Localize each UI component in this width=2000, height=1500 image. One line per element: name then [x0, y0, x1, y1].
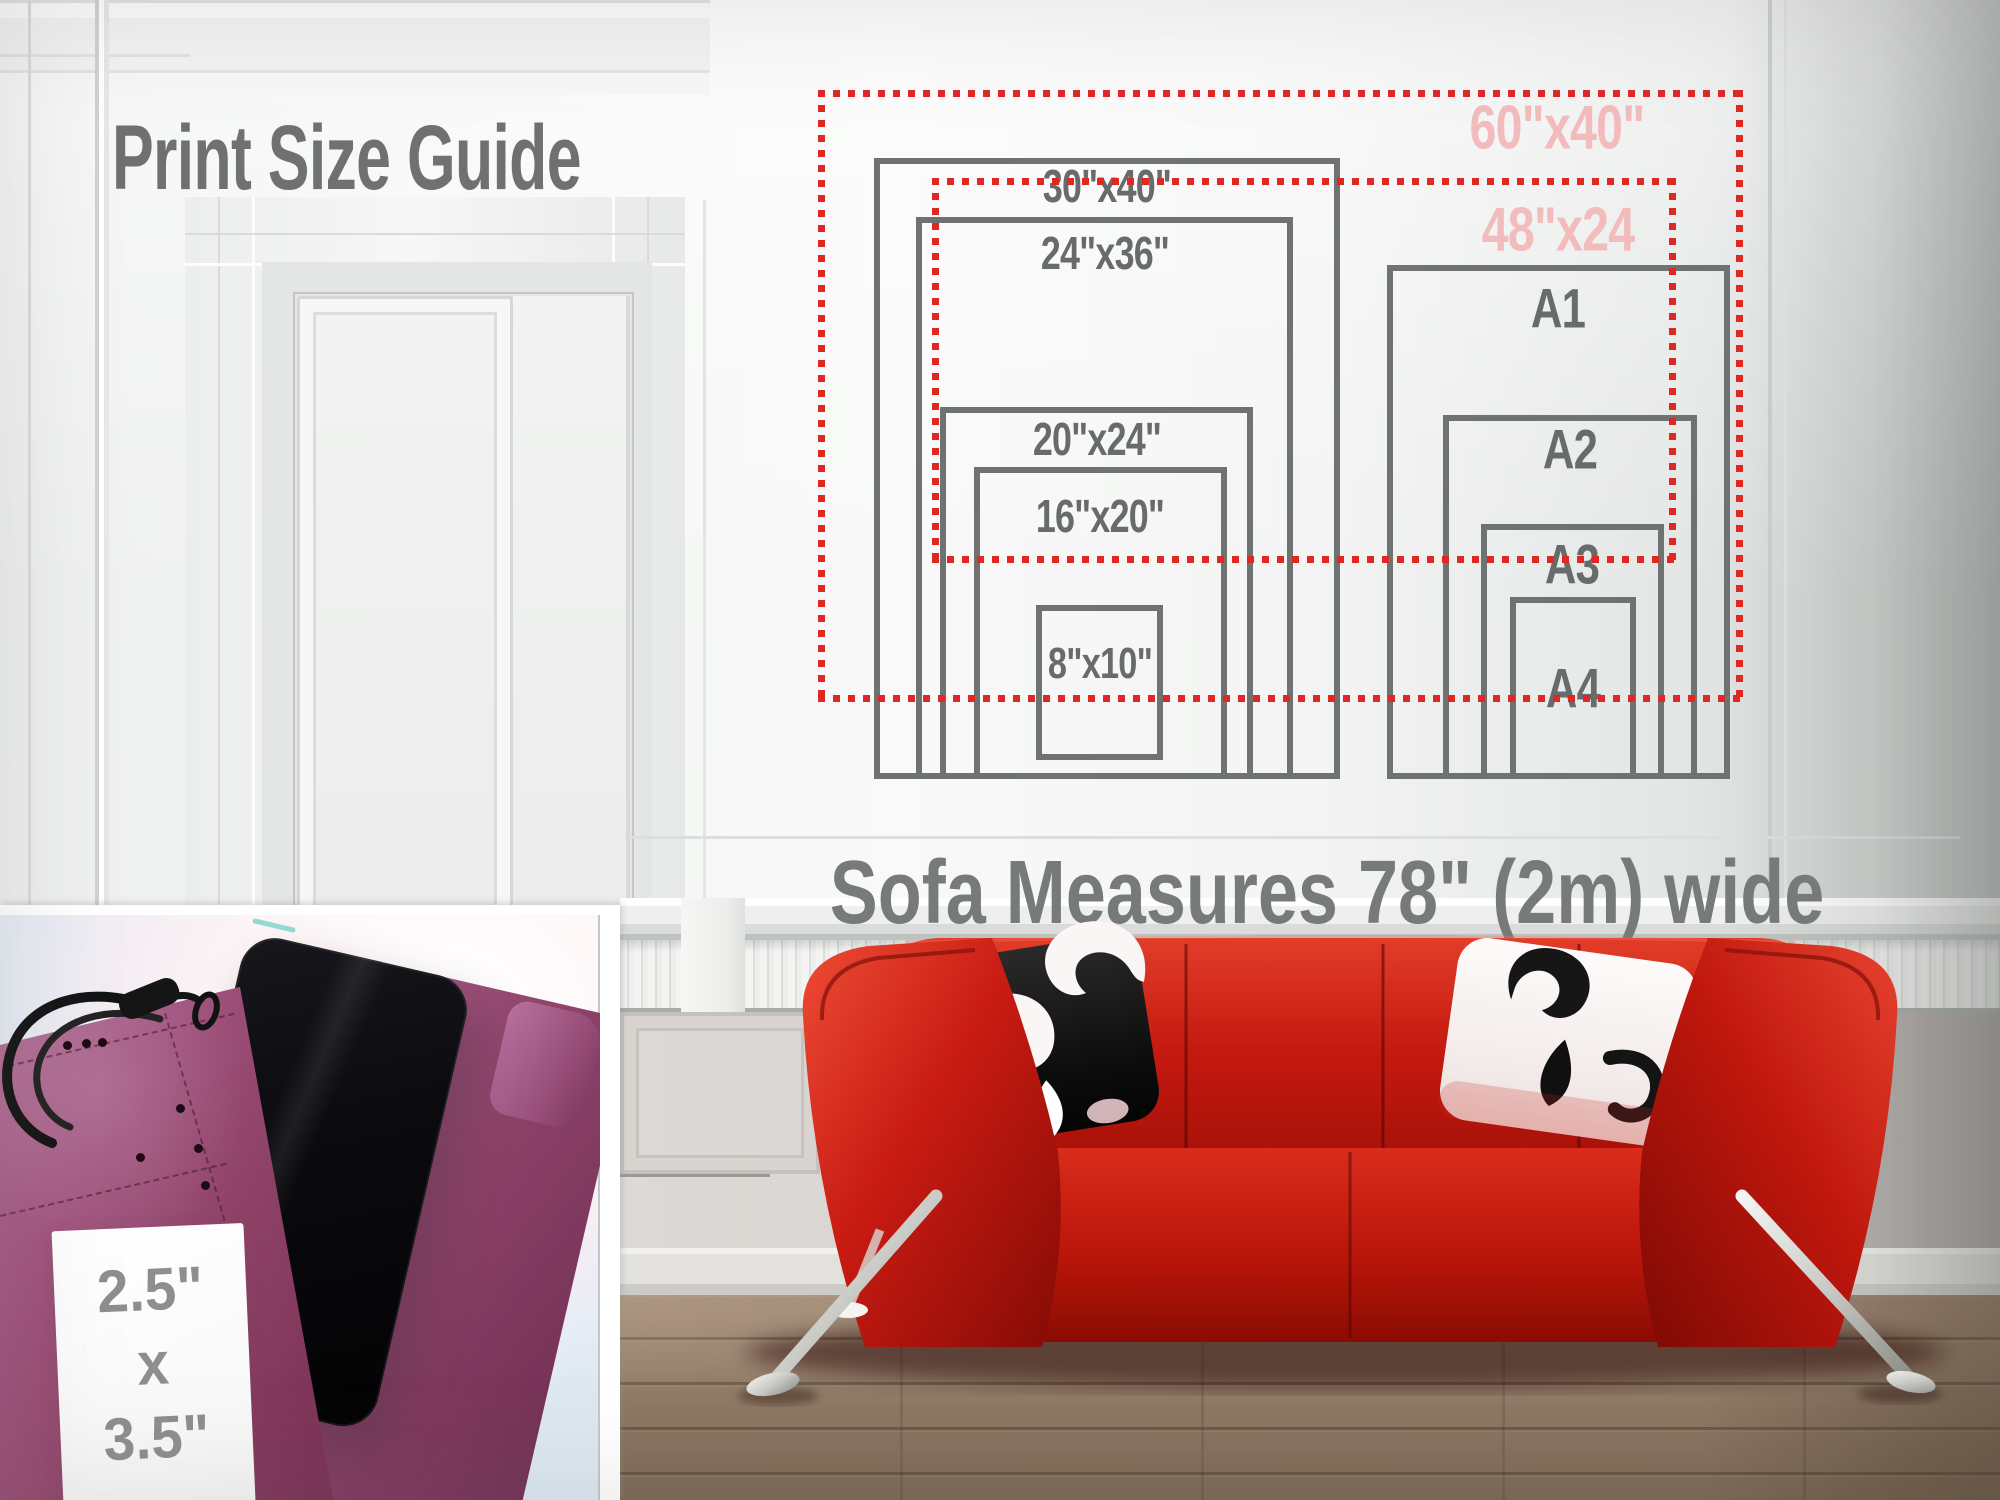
- room-scene: Print Size Guide Sofa Measures 78" (2m) …: [0, 0, 2000, 1500]
- inset-photo: 2.5" x 3.5": [0, 915, 600, 1500]
- card-line: 3.5": [102, 1399, 211, 1478]
- card-line: 2.5": [96, 1251, 205, 1330]
- phone-wallet-inset: 2.5" x 3.5": [0, 905, 620, 1500]
- card-line: x: [136, 1326, 171, 1401]
- size-card: 2.5" x 3.5": [52, 1223, 257, 1500]
